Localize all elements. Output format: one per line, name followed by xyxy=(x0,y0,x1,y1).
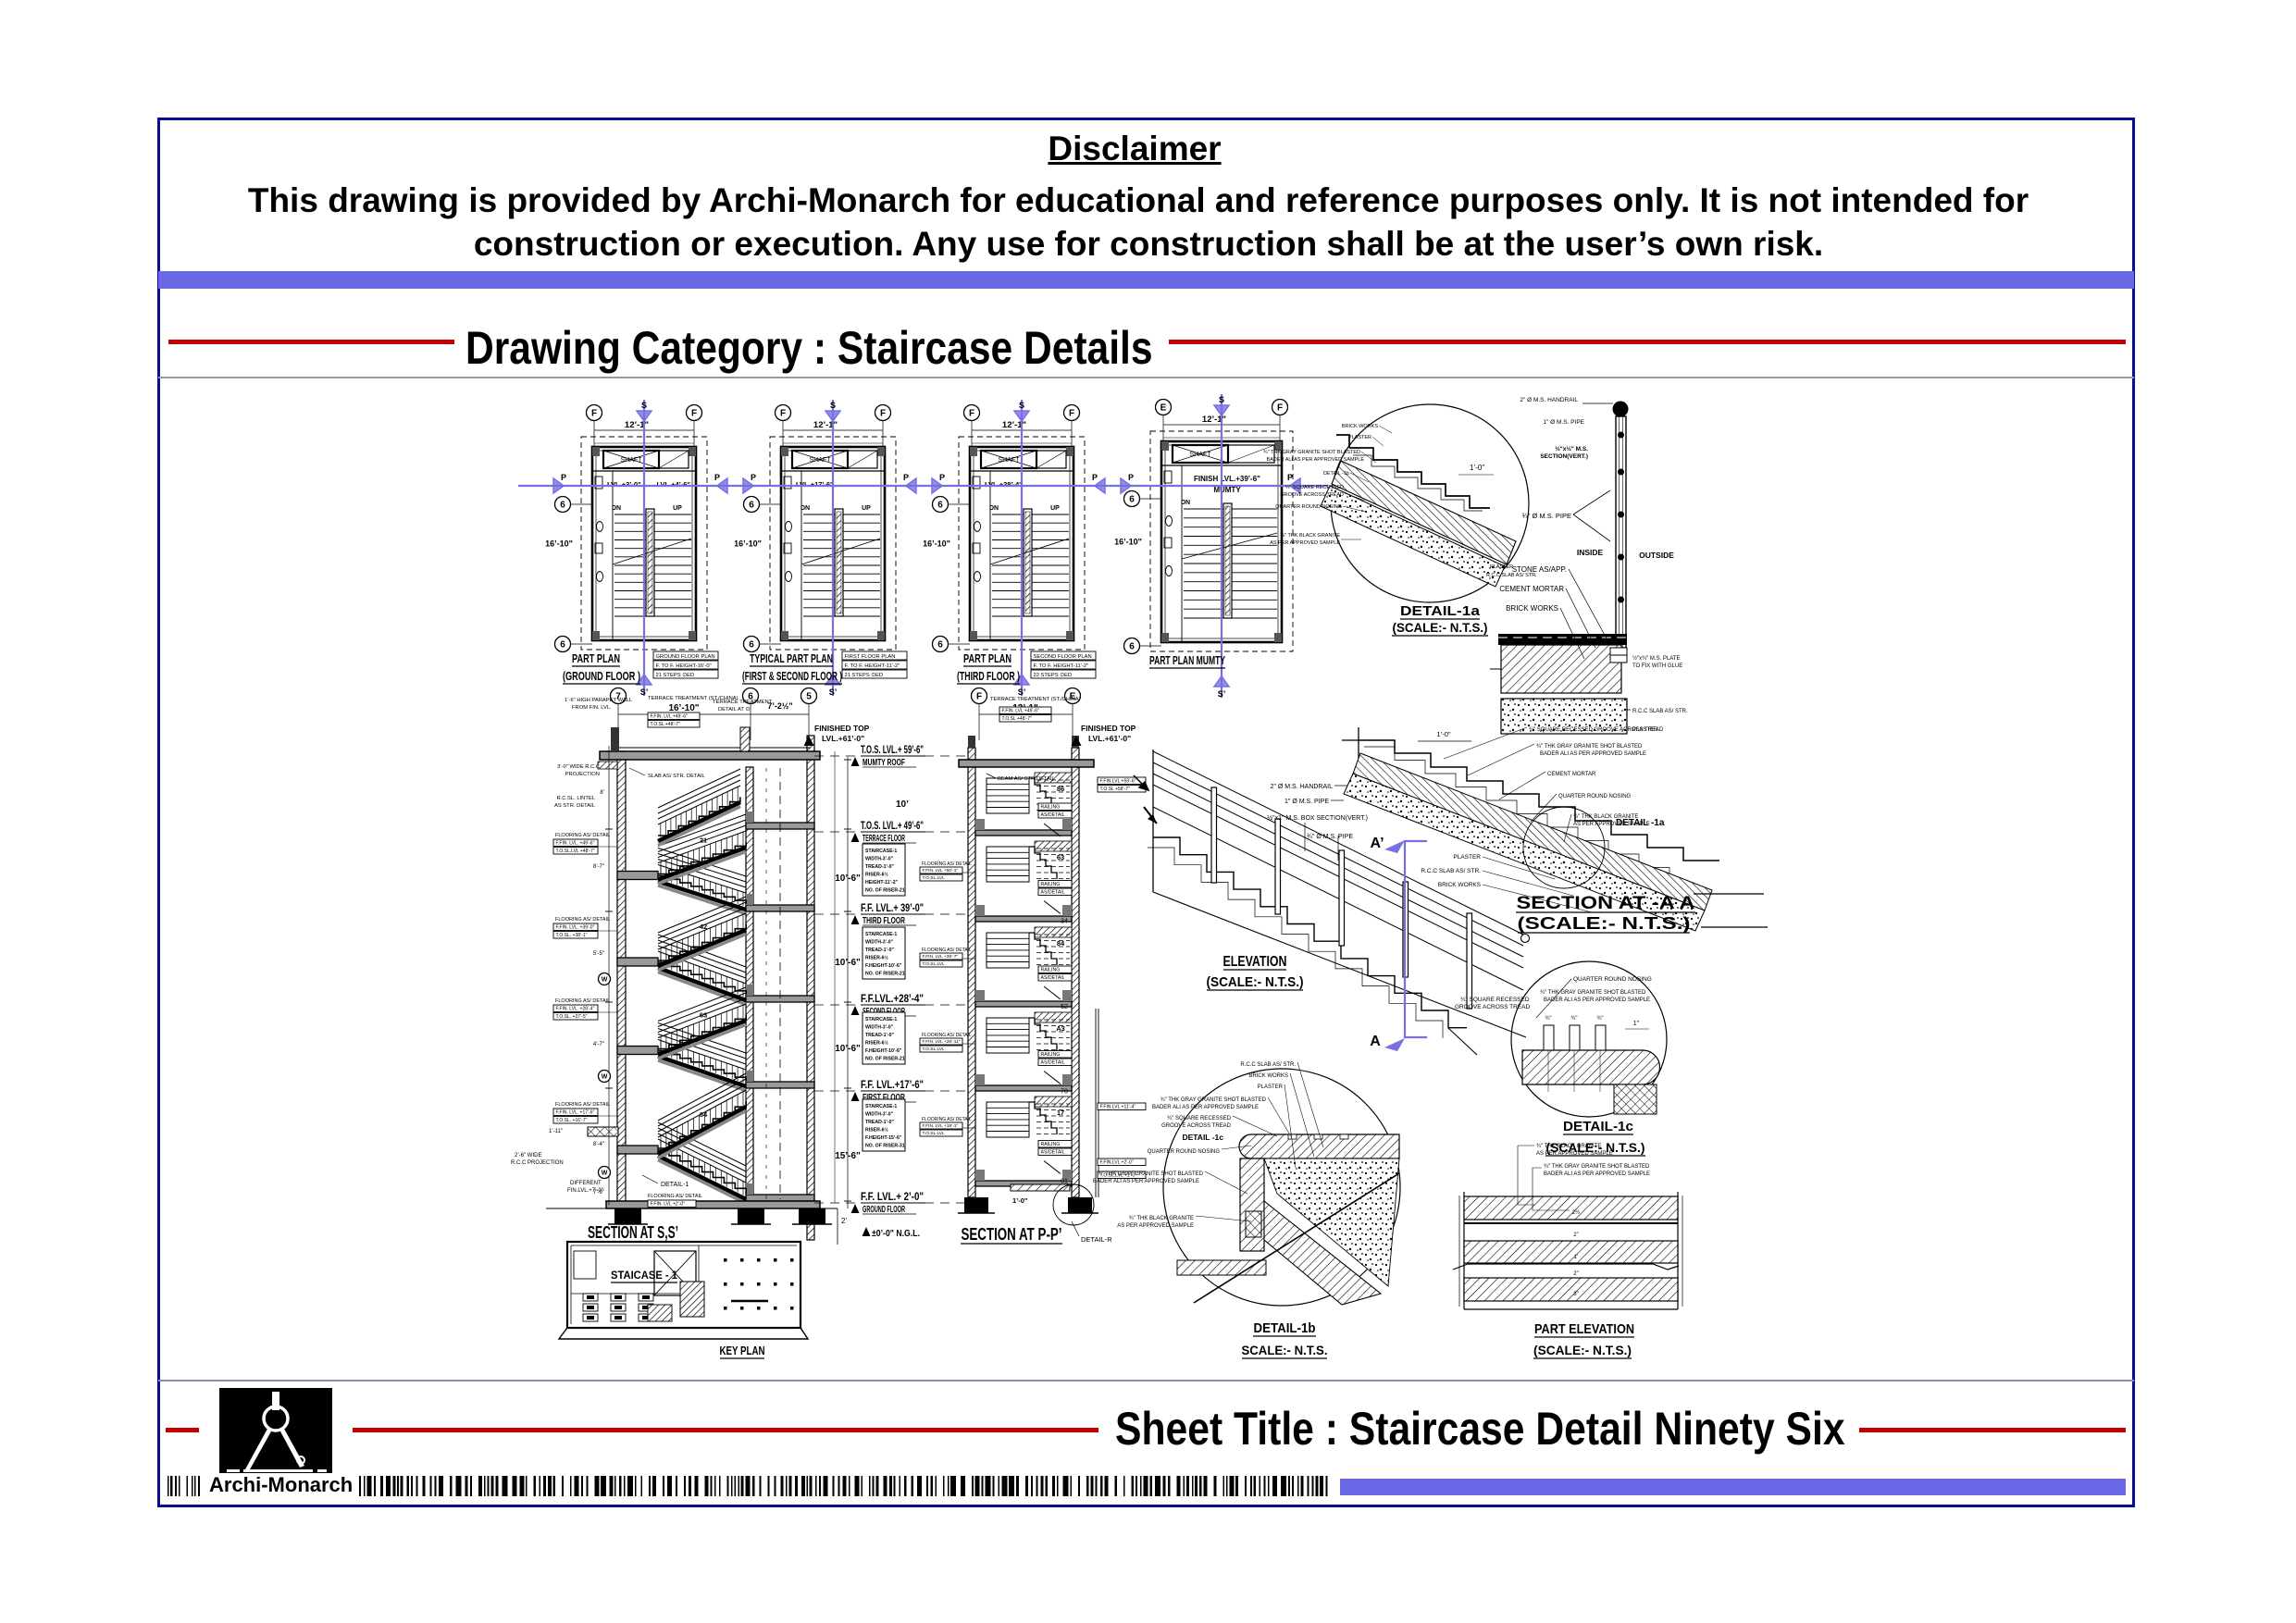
svg-text:6: 6 xyxy=(1129,642,1135,652)
svg-text:2’: 2’ xyxy=(841,1217,847,1225)
svg-text:F.FIN.LVL +2’-0": F.FIN.LVL +2’-0" xyxy=(1100,1160,1134,1166)
svg-text:DETAIL-1b: DETAIL-1b xyxy=(1254,1320,1316,1336)
svg-text:FLOORING AS/ DETAIL: FLOORING AS/ DETAIL xyxy=(555,1102,610,1108)
svg-text:SHAFT: SHAFT xyxy=(621,457,643,464)
svg-text:DETAIL -1c: DETAIL -1c xyxy=(1182,1133,1223,1142)
svg-text:DETAIL -1b: DETAIL -1b xyxy=(1323,471,1349,477)
svg-text:6: 6 xyxy=(937,640,943,650)
svg-text:TERRACE FLOOR: TERRACE FLOOR xyxy=(863,833,905,844)
svg-text:T.O.S. LVL.+ 59’-6": T.O.S. LVL.+ 59’-6" xyxy=(861,745,924,756)
svg-text:P: P xyxy=(561,473,566,482)
svg-text:S’: S’ xyxy=(1018,688,1026,697)
svg-text:NO. OF RISER-21: NO. OF RISER-21 xyxy=(865,888,905,894)
svg-text:21 STEPS ⊙ED: 21 STEPS ⊙ED xyxy=(656,673,695,678)
svg-text:AS STR. DETAIL: AS STR. DETAIL xyxy=(554,803,596,809)
svg-text:QUARTER ROUND NOSING: QUARTER ROUND NOSING xyxy=(1573,976,1652,983)
svg-text:FLOORING AS/ DETAIL: FLOORING AS/ DETAIL xyxy=(922,948,972,953)
svg-text:TREAD-1’-0": TREAD-1’-0" xyxy=(865,864,895,870)
svg-text:MUMTY ROOF: MUMTY ROOF xyxy=(863,757,905,768)
svg-text:F: F xyxy=(1069,409,1074,419)
svg-text:T.O.SL +48’-7": T.O.SL +48’-7" xyxy=(651,722,681,727)
svg-text:NO. OF RISER-31: NO. OF RISER-31 xyxy=(865,1144,905,1149)
svg-text:T.O.SL.LVL +48’-7": T.O.SL.LVL +48’-7" xyxy=(556,849,595,854)
svg-text:DN: DN xyxy=(989,505,999,512)
svg-text:STAIRCASE-1: STAIRCASE-1 xyxy=(865,1104,897,1109)
svg-text:PLASTER: PLASTER xyxy=(1453,854,1481,861)
svg-text:LVL.+3’-0": LVL.+3’-0" xyxy=(607,480,641,489)
svg-text:A’: A’ xyxy=(1370,836,1384,851)
svg-text:F.F. LVL.+17’-6": F.F. LVL.+17’-6" xyxy=(861,1080,924,1091)
svg-text:¾": ¾" xyxy=(1596,1016,1603,1022)
svg-text:F.FIN. LVL +50’-1": F.FIN. LVL +50’-1" xyxy=(923,868,959,873)
svg-text:FLOORING AS/ DETAIL: FLOORING AS/ DETAIL xyxy=(922,861,972,867)
svg-text:22 STEPS ⊙ED: 22 STEPS ⊙ED xyxy=(1034,673,1073,678)
svg-text:TERRACE TREATMENT (ST./CHINA): TERRACE TREATMENT (ST./CHINA) xyxy=(990,697,1081,702)
svg-text:6: 6 xyxy=(1129,495,1135,505)
svg-text:T.O.SL. +16’-7": T.O.SL. +16’-7" xyxy=(556,1118,588,1123)
svg-text:S’: S’ xyxy=(640,688,649,697)
svg-text:F.FIN. LVL +2’-0": F.FIN. LVL +2’-0" xyxy=(651,1202,686,1208)
svg-text:¾" Ø M.S. PIPE: ¾" Ø M.S. PIPE xyxy=(1307,834,1353,840)
svg-text:F: F xyxy=(591,409,597,419)
svg-text:6: 6 xyxy=(560,501,565,511)
svg-text:F.F. LVL.+ 2’-0": F.F. LVL.+ 2’-0" xyxy=(861,1192,924,1203)
svg-text:10’: 10’ xyxy=(896,799,909,810)
svg-text:STONE AS/APP.: STONE AS/APP. xyxy=(1512,565,1567,574)
svg-text:W: W xyxy=(602,1074,608,1081)
svg-text:R.C.C SLAB AS/ STR.: R.C.C SLAB AS/ STR. xyxy=(1632,709,1688,714)
svg-text:BADER ALI AS PER APPROVED SAMP: BADER ALI AS PER APPROVED SAMPLE xyxy=(1152,1105,1259,1110)
svg-text:F.F. LVL.+ 39’-0": F.F. LVL.+ 39’-0" xyxy=(861,903,924,914)
svg-text:10’-6": 10’-6" xyxy=(835,1044,861,1054)
svg-text:F. TO F. HEIGHT-11’-2": F. TO F. HEIGHT-11’-2" xyxy=(845,663,900,669)
svg-text:LVL.+61’-0": LVL.+61’-0" xyxy=(1088,734,1131,743)
svg-text:KEY PLAN: KEY PLAN xyxy=(720,1344,765,1357)
svg-text:P: P xyxy=(1128,473,1134,482)
svg-text:A3: A3 xyxy=(1056,1024,1065,1033)
svg-text:UP: UP xyxy=(673,505,682,512)
svg-text:F.FIN.LVL +11’-4": F.FIN.LVL +11’-4" xyxy=(1100,1105,1136,1110)
svg-text:(SCALE:- N.T.S.): (SCALE:- N.T.S.) xyxy=(1533,1343,1632,1357)
svg-text:F: F xyxy=(1277,403,1283,414)
svg-text:T.O.SL.LVL: T.O.SL.LVL xyxy=(923,961,946,967)
svg-text:T.O.S. LVL.+ 49’-6": T.O.S. LVL.+ 49’-6" xyxy=(861,821,924,832)
svg-text:DETAIL AT ⊙: DETAIL AT ⊙ xyxy=(718,707,750,712)
svg-text:21: 21 xyxy=(700,836,707,845)
svg-text:SECTION AT -A A: SECTION AT -A A xyxy=(1517,894,1695,913)
svg-text:SLAB AS/ STR. DETAIL: SLAB AS/ STR. DETAIL xyxy=(648,774,706,779)
svg-text:INSIDE: INSIDE xyxy=(1577,548,1604,557)
svg-text:TYPICAL PART PLAN: TYPICAL PART PLAN xyxy=(750,651,833,665)
svg-text:P: P xyxy=(1287,473,1293,482)
svg-text:T.O.SL.LVL: T.O.SL.LVL xyxy=(923,1047,946,1052)
svg-text:DETAIL-1: DETAIL-1 xyxy=(661,1182,689,1188)
svg-text:5: 5 xyxy=(806,692,812,702)
svg-text:F: F xyxy=(880,409,886,419)
svg-text:BADER ALI AS PER APPROVED SAMP: BADER ALI AS PER APPROVED SAMPLE xyxy=(1540,751,1646,757)
svg-text:F: F xyxy=(691,409,697,419)
svg-text:12’-1": 12’-1" xyxy=(813,420,838,430)
svg-text:1’-0": 1’-0" xyxy=(1012,1196,1028,1205)
svg-text:F.FIN. LVL +28’-11": F.FIN. LVL +28’-11" xyxy=(923,1039,961,1045)
svg-text:17: 17 xyxy=(1057,1109,1064,1117)
svg-text:STAIRCASE-1: STAIRCASE-1 xyxy=(865,932,897,937)
svg-text:P: P xyxy=(1092,473,1098,482)
svg-text:CEMENT MORTAR: CEMENT MORTAR xyxy=(1547,772,1596,777)
svg-text:E: E xyxy=(1160,403,1167,414)
svg-text:AS PER APPROVED SAMPLE: AS PER APPROVED SAMPLE xyxy=(1536,1151,1613,1157)
svg-text:T.O.SL.LVL: T.O.SL.LVL xyxy=(923,1131,946,1136)
svg-text:63: 63 xyxy=(700,1011,707,1020)
svg-text:NO. OF RISER-21: NO. OF RISER-21 xyxy=(865,972,905,977)
svg-text:TO FIX WITH GLUE: TO FIX WITH GLUE xyxy=(1632,663,1682,669)
svg-text:¾" SQUARE RECESSED GROOVE ACRO: ¾" SQUARE RECESSED GROOVE ACROSS TREAD xyxy=(1529,727,1664,733)
svg-text:DIFFERENT: DIFFERENT xyxy=(570,1181,602,1186)
svg-text:¾" THK GRAY GRANITE SHOT BLAST: ¾" THK GRAY GRANITE SHOT BLASTED xyxy=(1544,1164,1650,1170)
svg-text:86: 86 xyxy=(1057,785,1064,793)
svg-text:GROOVE ACROSS TREAD: GROOVE ACROSS TREAD xyxy=(1280,492,1344,498)
svg-text:FROM FIN. LVL.: FROM FIN. LVL. xyxy=(572,705,612,711)
svg-text:AS/DETAIL: AS/DETAIL xyxy=(1041,975,1065,981)
svg-text:S: S xyxy=(830,401,836,410)
svg-text:WIDTH-3’-0": WIDTH-3’-0" xyxy=(865,857,894,862)
svg-text:FIN.LVL.+7’-0": FIN.LVL.+7’-0" xyxy=(567,1188,603,1194)
svg-text:R.C.C SLAB AS/ STR.: R.C.C SLAB AS/ STR. xyxy=(1421,868,1481,874)
svg-text:F. TO F. HEIGHT-11’-2": F. TO F. HEIGHT-11’-2" xyxy=(1034,663,1089,669)
svg-text:MUMTY: MUMTY xyxy=(1213,486,1241,494)
svg-text:1’-6" HIGH PARAPET WALL: 1’-6" HIGH PARAPET WALL xyxy=(565,698,633,703)
svg-text:F.FIN. LVL +39’-7": F.FIN. LVL +39’-7" xyxy=(923,954,959,960)
svg-text:21 STEPS ⊙ED: 21 STEPS ⊙ED xyxy=(845,673,884,678)
svg-text:¾" THK BLACK GRANITE: ¾" THK BLACK GRANITE xyxy=(1129,1216,1194,1221)
svg-text:FINISH LVL.+39’-6": FINISH LVL.+39’-6" xyxy=(1194,475,1260,483)
svg-text:TREAD-1’-0": TREAD-1’-0" xyxy=(865,1033,895,1038)
svg-text:¾": ¾" xyxy=(1570,1016,1577,1022)
svg-text:2" Ø M.S. HANDRAIL: 2" Ø M.S. HANDRAIL xyxy=(1520,397,1578,403)
svg-text:BRICK WORKS: BRICK WORKS xyxy=(1506,604,1558,613)
svg-text:AS PER APPROVED SAMPLE: AS PER APPROVED SAMPLE xyxy=(1270,540,1340,546)
svg-text:F.F.LVL.+28’-4": F.F.LVL.+28’-4" xyxy=(861,994,924,1005)
svg-text:QUARTER ROUND NOSING: QUARTER ROUND NOSING xyxy=(1148,1149,1221,1155)
svg-text:4’-7": 4’-7" xyxy=(593,1042,604,1047)
svg-text:¾" THK GRAY GRANITE SHOT BLAST: ¾" THK GRAY GRANITE SHOT BLASTED xyxy=(1540,990,1646,996)
svg-text:6: 6 xyxy=(560,640,565,650)
svg-text:6: 6 xyxy=(937,501,943,511)
svg-text:F: F xyxy=(976,692,982,702)
svg-text:RISER-6½: RISER-6½ xyxy=(865,1127,888,1134)
svg-text:WIDTH-3’-0": WIDTH-3’-0" xyxy=(865,940,894,946)
svg-text:UP: UP xyxy=(1050,505,1060,512)
svg-text:¾" THK BLACK GRANITE: ¾" THK BLACK GRANITE xyxy=(1280,533,1340,539)
svg-text:RISER-6½: RISER-6½ xyxy=(865,955,888,961)
svg-text:SHAFT: SHAFT xyxy=(999,457,1021,464)
svg-text:S’: S’ xyxy=(1218,689,1226,699)
svg-text:ELEVATION: ELEVATION xyxy=(1223,954,1287,970)
svg-text:DETAIL-R: DETAIL-R xyxy=(1081,1235,1112,1244)
svg-text:¾" THK GRAY GRANITE SHOT BLAST: ¾" THK GRAY GRANITE SHOT BLASTED xyxy=(1160,1097,1267,1103)
svg-text:PLASTER: PLASTER xyxy=(1258,1084,1284,1090)
svg-text:2": 2" xyxy=(1573,1233,1578,1238)
svg-text:FLOORING AS/ DETAIL: FLOORING AS/ DETAIL xyxy=(555,833,610,838)
svg-text:STAIRCASE-1: STAIRCASE-1 xyxy=(865,849,897,854)
svg-text:2": 2" xyxy=(1573,1271,1578,1277)
svg-text:R.C.C PROJECTION: R.C.C PROJECTION xyxy=(511,1160,564,1166)
svg-text:PART PLAN: PART PLAN xyxy=(963,651,1011,665)
svg-text:RAILING: RAILING xyxy=(1041,805,1061,811)
svg-text:DN: DN xyxy=(800,505,810,512)
svg-text:S: S xyxy=(641,401,647,410)
svg-text:1’-11": 1’-11" xyxy=(549,1129,563,1134)
svg-text:P: P xyxy=(714,473,720,482)
svg-text:BADER ALI AS PER APPROVED SAMP: BADER ALI AS PER APPROVED SAMPLE xyxy=(1267,457,1365,463)
svg-text:¾" SQUARE RECESSED: ¾" SQUARE RECESSED xyxy=(1460,997,1530,1003)
svg-text:T.O.SL +58’-7": T.O.SL +58’-7" xyxy=(1100,787,1131,792)
svg-text:1’-0": 1’-0" xyxy=(1470,464,1484,472)
svg-text:FLOORING AS/ DETAIL: FLOORING AS/ DETAIL xyxy=(648,1194,702,1199)
svg-text:UP: UP xyxy=(862,505,871,512)
svg-text:F.HEIGHT-15’-6": F.HEIGHT-15’-6" xyxy=(865,1135,902,1141)
svg-text:S: S xyxy=(1219,395,1224,404)
svg-text:SECTION AT S,S’: SECTION AT S,S’ xyxy=(588,1223,678,1242)
svg-text:16’-10": 16’-10" xyxy=(545,539,573,549)
svg-text:SHAFT: SHAFT xyxy=(810,457,832,464)
svg-text:84: 84 xyxy=(700,1110,708,1119)
svg-text:52: 52 xyxy=(1061,1004,1068,1010)
svg-text:THIRD FLOOR: THIRD FLOOR xyxy=(863,915,905,926)
svg-text:3’-0" WIDE R.C.C: 3’-0" WIDE R.C.C xyxy=(557,764,600,770)
svg-text:½"x1" M.S. BOX SECTION(VERT.): ½"x1" M.S. BOX SECTION(VERT.) xyxy=(1267,814,1368,822)
svg-text:RISER-6½: RISER-6½ xyxy=(865,1040,888,1047)
svg-text:RAILING: RAILING xyxy=(1041,1142,1061,1147)
svg-text:F.FIN.LVL +59’-6": F.FIN.LVL +59’-6" xyxy=(1100,779,1136,785)
svg-text:84: 84 xyxy=(1057,939,1065,948)
svg-text:SECTION AT P-P’: SECTION AT P-P’ xyxy=(962,1225,1062,1244)
svg-text:FINISHED TOP: FINISHED TOP xyxy=(1081,724,1136,733)
svg-text:10’-6": 10’-6" xyxy=(835,958,861,968)
svg-text:63: 63 xyxy=(1057,853,1064,861)
svg-text:T.O.SL. +38’-1": T.O.SL. +38’-1" xyxy=(556,933,588,938)
svg-text:¼" SQUARE RECESSED: ¼" SQUARE RECESSED xyxy=(1285,485,1344,490)
svg-text:RAILING: RAILING xyxy=(1041,882,1061,887)
svg-text:WIDTH-3’-0": WIDTH-3’-0" xyxy=(865,1025,894,1031)
svg-text:LVL.+4’-6": LVL.+4’-6" xyxy=(656,480,690,489)
svg-text:5’-5": 5’-5" xyxy=(593,951,604,957)
svg-text:1’-0": 1’-0" xyxy=(1436,730,1451,738)
svg-text:SHAFT: SHAFT xyxy=(1190,452,1212,458)
svg-text:16’-10": 16’-10" xyxy=(734,539,762,549)
svg-text:LVL.+61’-0": LVL.+61’-0" xyxy=(822,734,864,743)
svg-text:70: 70 xyxy=(1061,1089,1068,1096)
svg-text:12’-1": 12’-1" xyxy=(1002,420,1026,430)
svg-text:10’-6": 10’-6" xyxy=(835,873,861,884)
svg-text:16’-10": 16’-10" xyxy=(1114,538,1142,547)
svg-text:PLASTER: PLASTER xyxy=(1490,564,1513,570)
svg-text:2½: 2½ xyxy=(1572,1209,1580,1216)
svg-text:8’-7": 8’-7" xyxy=(593,864,604,870)
svg-text:¾" THK GRAY GRANITE SHOT BLAST: ¾" THK GRAY GRANITE SHOT BLASTED xyxy=(1263,450,1360,455)
svg-text:QUARTER ROUND NOSING: QUARTER ROUND NOSING xyxy=(1558,794,1632,799)
svg-text:DN: DN xyxy=(612,505,621,512)
svg-text:½"x½" M.S.: ½"x½" M.S. xyxy=(1555,445,1588,452)
svg-text:¾" THK GRAY GRANITE SHOT BLAST: ¾" THK GRAY GRANITE SHOT BLASTED xyxy=(1098,1171,1204,1177)
svg-text:QUARTER ROUND NOSING: QUARTER ROUND NOSING xyxy=(1275,504,1342,510)
svg-text:(THIRD FLOOR ): (THIRD FLOOR ) xyxy=(957,669,1020,683)
svg-text:R.C.SL. LINTEL: R.C.SL. LINTEL xyxy=(556,796,595,801)
svg-text:TERRACE TREATMENT: TERRACE TREATMENT xyxy=(713,700,773,705)
svg-text:½"x¾" M.S. PLATE: ½"x¾" M.S. PLATE xyxy=(1632,655,1681,662)
svg-text:34: 34 xyxy=(1061,919,1068,925)
svg-text:1" Ø M.S. PIPE: 1" Ø M.S. PIPE xyxy=(1543,419,1584,426)
svg-text:SCALE:- N.T.S.: SCALE:- N.T.S. xyxy=(1242,1343,1328,1357)
svg-text:TREAD-1’-0": TREAD-1’-0" xyxy=(865,948,895,953)
svg-text:T.O.SL.LVL: T.O.SL.LVL xyxy=(923,875,946,881)
svg-text:OUTSIDE: OUTSIDE xyxy=(1639,551,1674,560)
svg-text:F.FIN. LVL +18’-1": F.FIN. LVL +18’-1" xyxy=(923,1123,959,1129)
svg-text:42: 42 xyxy=(700,923,707,931)
svg-text:(SCALE:- N.T.S.): (SCALE:- N.T.S.) xyxy=(1393,620,1488,635)
svg-text:BADER ALI AS PER APPROVED SAMP: BADER ALI AS PER APPROVED SAMPLE xyxy=(1544,997,1650,1003)
svg-text:F. TO F. HEIGHT-16’-0": F. TO F. HEIGHT-16’-0" xyxy=(656,663,712,669)
svg-text:HEIGHT-11’-2": HEIGHT-11’-2" xyxy=(865,880,899,886)
svg-text:RAILING: RAILING xyxy=(1041,968,1061,973)
svg-text:AS/DETAIL: AS/DETAIL xyxy=(1041,1060,1065,1066)
svg-text:8’: 8’ xyxy=(600,790,604,796)
svg-text:W: W xyxy=(602,977,608,984)
svg-text:DETAIL-1c: DETAIL-1c xyxy=(1563,1119,1633,1134)
svg-text:AS PER APPROVED SAMPLE: AS PER APPROVED SAMPLE xyxy=(1117,1223,1194,1229)
svg-text:¾" THK BLACK GRANITE: ¾" THK BLACK GRANITE xyxy=(1536,1144,1601,1149)
svg-text:12’-1": 12’-1" xyxy=(625,420,649,430)
svg-text:FINISHED TOP: FINISHED TOP xyxy=(814,724,870,733)
svg-text:CEMENT MORTAR: CEMENT MORTAR xyxy=(1499,585,1564,593)
svg-text:DETAIL-1a: DETAIL-1a xyxy=(1400,603,1481,619)
svg-text:AS/DETAIL: AS/DETAIL xyxy=(1041,1150,1065,1156)
svg-text:1" Ø M.S. PIPE: 1" Ø M.S. PIPE xyxy=(1285,799,1329,805)
svg-text:F: F xyxy=(780,409,786,419)
svg-text:¾" THK BLACK GRANITE: ¾" THK BLACK GRANITE xyxy=(1573,814,1638,820)
svg-text:F.FIN. LVL. +49’-6": F.FIN. LVL. +49’-6" xyxy=(556,841,595,847)
svg-text:¾" SQUARE RECESSED: ¾" SQUARE RECESSED xyxy=(1167,1116,1231,1121)
svg-text:PART ELEVATION: PART ELEVATION xyxy=(1534,1321,1634,1337)
svg-text:BEAM AS/ STR.DETAIL: BEAM AS/ STR.DETAIL xyxy=(998,776,1056,782)
svg-text:BRICK WORKS: BRICK WORKS xyxy=(1438,882,1482,888)
svg-text:FLOORING AS/ DETAIL: FLOORING AS/ DETAIL xyxy=(922,1033,972,1038)
svg-text:F.FIN. LVL. +17’-6": F.FIN. LVL. +17’-6" xyxy=(556,1110,595,1116)
svg-text:S’: S’ xyxy=(829,688,838,697)
svg-text:STAIRCASE-1: STAIRCASE-1 xyxy=(865,1017,897,1022)
svg-text:16’-10": 16’-10" xyxy=(923,539,950,549)
svg-text:PROJECTION: PROJECTION xyxy=(565,772,600,777)
svg-text:S: S xyxy=(1019,401,1024,410)
svg-text:STAICASE - 1: STAICASE - 1 xyxy=(611,1269,677,1282)
svg-text:PART PLAN: PART PLAN xyxy=(572,651,620,665)
svg-text:PART PLAN MUMTY: PART PLAN MUMTY xyxy=(1149,653,1225,667)
svg-text:F.FIN. LVL. +39’-0": F.FIN. LVL. +39’-0" xyxy=(556,925,595,931)
svg-text:2" Ø M.S. HANDRAIL: 2" Ø M.S. HANDRAIL xyxy=(1271,784,1334,790)
svg-text:(SCALE:- N.T.S.): (SCALE:- N.T.S.) xyxy=(1518,914,1691,933)
svg-text:F.FIN. LVL +49’-6": F.FIN. LVL +49’-6" xyxy=(1002,709,1039,714)
svg-text:T.O.SL +48’-7": T.O.SL +48’-7" xyxy=(1002,716,1033,722)
svg-text:8’-4": 8’-4" xyxy=(593,1142,604,1147)
svg-text:SECOND FLOOR PLAN: SECOND FLOOR PLAN xyxy=(1034,654,1092,660)
svg-text:F.FIN. LVL +49’-6": F.FIN. LVL +49’-6" xyxy=(651,714,688,720)
svg-text:15’-6": 15’-6" xyxy=(835,1151,861,1161)
svg-text:1": 1" xyxy=(1633,1021,1640,1027)
svg-text:F.HEIGHT-10’-6": F.HEIGHT-10’-6" xyxy=(865,1048,902,1054)
svg-text:FLOORING AS/ DETAIL: FLOORING AS/ DETAIL xyxy=(555,917,610,923)
svg-text:AS/DETAIL: AS/DETAIL xyxy=(1041,812,1065,818)
svg-text:(FIRST & SECOND FLOOR ): (FIRST & SECOND FLOOR ) xyxy=(742,669,842,683)
svg-text:AS/DETAIL: AS/DETAIL xyxy=(1041,890,1065,896)
svg-text:6: 6 xyxy=(749,640,754,650)
svg-text:GROOVE ACROSS TREAD: GROOVE ACROSS TREAD xyxy=(1161,1123,1232,1129)
svg-text:RAILING: RAILING xyxy=(1041,1052,1061,1058)
svg-text:6: 6 xyxy=(749,501,754,511)
svg-text:BRICK WORKS: BRICK WORKS xyxy=(1342,424,1378,429)
svg-text:12’-1": 12’-1" xyxy=(1202,415,1226,425)
svg-text:AS PER APPROVED SAMPLE: AS PER APPROVED SAMPLE xyxy=(1573,822,1650,827)
svg-text:T.O.SL. +27’-5": T.O.SL. +27’-5" xyxy=(556,1014,588,1020)
svg-text:FLOORING AS/ DETAIL: FLOORING AS/ DETAIL xyxy=(922,1117,972,1122)
svg-text:GROUND FLOOR: GROUND FLOOR xyxy=(863,1204,905,1215)
svg-text:¾" Ø M.S. PIPE: ¾" Ø M.S. PIPE xyxy=(1521,512,1571,520)
svg-text:NO. OF RISER-21: NO. OF RISER-21 xyxy=(865,1057,905,1062)
svg-text:F.FIN. LVL. +28’-4": F.FIN. LVL. +28’-4" xyxy=(556,1007,595,1012)
svg-text:91: 91 xyxy=(1061,1179,1068,1185)
svg-text:BADER ALI AS PER APPROVED SAMP: BADER ALI AS PER APPROVED SAMPLE xyxy=(1093,1179,1199,1184)
svg-text:P: P xyxy=(751,473,756,482)
svg-text:(GROUND FLOOR ): (GROUND FLOOR ) xyxy=(563,669,640,683)
svg-text:W: W xyxy=(602,1171,608,1177)
svg-text:BADER ALI AS PER APPROVED SAMP: BADER ALI AS PER APPROVED SAMPLE xyxy=(1544,1171,1650,1177)
svg-text:16’-10": 16’-10" xyxy=(668,703,699,713)
svg-text:P: P xyxy=(939,473,945,482)
svg-text:F: F xyxy=(969,409,974,419)
svg-text:PLASTER: PLASTER xyxy=(1348,435,1371,440)
svg-text:3": 3" xyxy=(1573,1292,1578,1297)
svg-text:WIDTH-3’-0": WIDTH-3’-0" xyxy=(865,1112,894,1118)
svg-text:TREAD-1’-0": TREAD-1’-0" xyxy=(865,1120,895,1125)
svg-text:¾": ¾" xyxy=(1545,1016,1551,1022)
svg-text:BRICK WORKS: BRICK WORKS xyxy=(1248,1073,1288,1079)
svg-text:FIRST FLOOR PLAN: FIRST FLOOR PLAN xyxy=(845,654,896,660)
svg-text:±0’-0" N.G.L.: ±0’-0" N.G.L. xyxy=(872,1228,920,1239)
svg-text:A: A xyxy=(1370,1034,1381,1049)
svg-text:FLOORING AS/ DETAIL: FLOORING AS/ DETAIL xyxy=(555,998,610,1004)
svg-text:(SCALE:- N.T.S.): (SCALE:- N.T.S.) xyxy=(1207,974,1304,990)
svg-text:RISER-6½: RISER-6½ xyxy=(865,872,888,878)
svg-text:SECTION(VERT.): SECTION(VERT.) xyxy=(1540,453,1588,460)
svg-text:GROUND FLOOR PLAN: GROUND FLOOR PLAN xyxy=(656,654,715,660)
svg-text:1’: 1’ xyxy=(1574,1255,1579,1260)
svg-text:2’-6" WIDE: 2’-6" WIDE xyxy=(515,1153,541,1158)
svg-text:F.HEIGHT-10’-6": F.HEIGHT-10’-6" xyxy=(865,963,902,969)
svg-text:¾" THK GRAY GRANITE SHOT BLAST: ¾" THK GRAY GRANITE SHOT BLASTED xyxy=(1536,744,1643,750)
svg-text:DN: DN xyxy=(1181,500,1190,506)
svg-text:R.C.C SLAB AS/ STR.: R.C.C SLAB AS/ STR. xyxy=(1240,1062,1296,1068)
svg-text:P: P xyxy=(903,473,909,482)
